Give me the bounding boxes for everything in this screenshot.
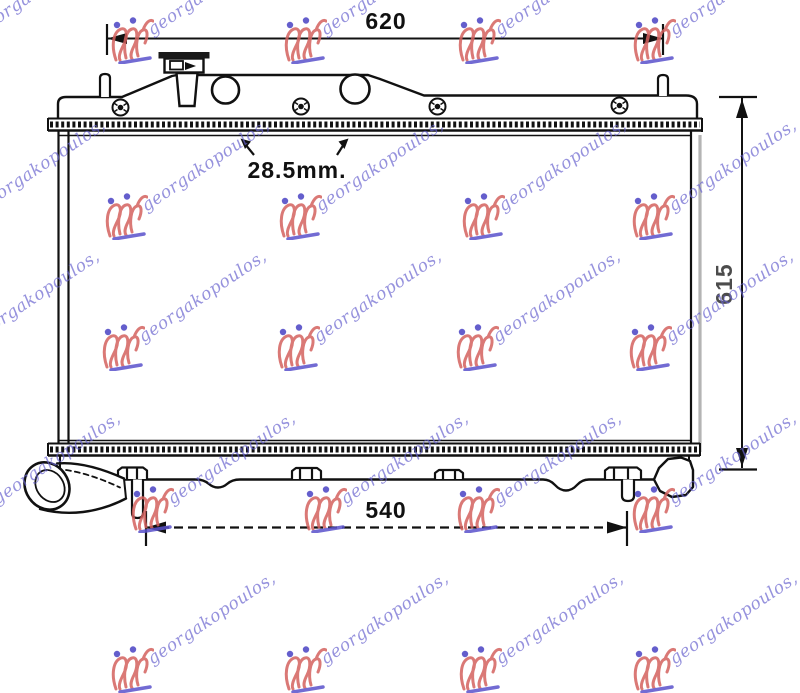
drain-pin [622,480,634,502]
right-tab [658,75,668,96]
watermark-text: georgakopoulos, [666,568,800,669]
pipe-diameter-annotation: 28.5mm. [241,139,349,184]
pipe-diameter-label: 28.5mm. [247,157,346,183]
watermark-text: georgakopoulos, [144,568,280,669]
watermark: georgakopoulos, [632,645,800,693]
dimension-height: 615 [711,97,757,470]
core-left-edge [59,131,69,443]
radiator-technical-diagram: 620 615 540 28.5mm. georgakopoulos, geor… [0,0,800,583]
core-bottom-band [48,441,700,457]
bracket [118,468,641,480]
watermark-logo [458,645,502,693]
core-right-edge [691,131,700,452]
outlet-hose [15,454,126,519]
dimension-bottom-width-label: 540 [365,497,406,523]
dimension-bottom-width: 540 [146,497,627,546]
right-corner-foot [654,458,693,498]
watermark-logo [632,645,676,693]
watermark-text: georgakopoulos, [492,568,628,669]
radiator-drawing: 620 615 540 28.5mm. [0,0,800,583]
watermark-logo [283,645,327,693]
dimension-height-label: 615 [711,263,737,304]
mounting-pin-left [132,480,143,519]
watermark-logo [110,645,154,693]
left-tab [100,74,110,97]
inlet-hole-left [212,77,239,104]
dimension-top-width-label: 620 [365,8,406,34]
top-tank [58,74,697,124]
watermark-text: georgakopoulos, [317,568,453,669]
watermark: georgakopoulos, [110,645,305,693]
watermark: georgakopoulos, [283,645,478,693]
filler-neck [177,73,198,106]
core-top-band [48,118,702,136]
inlet-hole-right [341,75,370,104]
dimension-top-width: 620 [107,8,663,55]
watermark: georgakopoulos, [458,645,653,693]
